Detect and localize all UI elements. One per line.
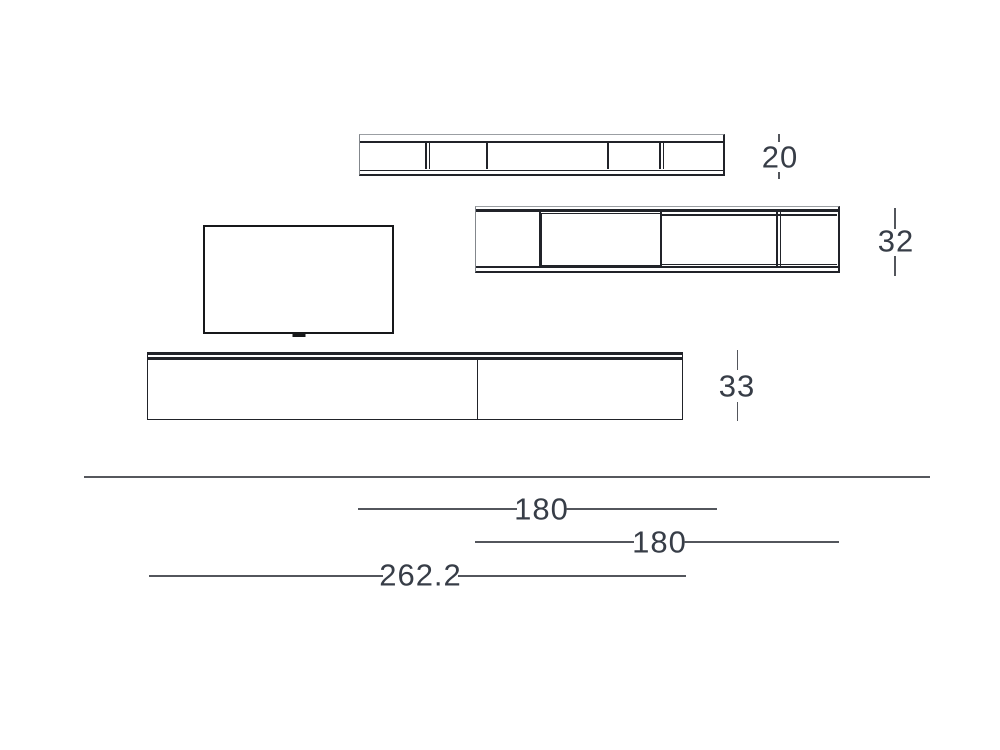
dimension-line (358, 508, 517, 510)
compartment-divider (607, 142, 609, 169)
dimension-line (684, 541, 839, 543)
compartment-divider (659, 142, 661, 169)
shelf-top-band (476, 209, 838, 212)
furniture-dimension-diagram: 20 32 33 180 180 262.2 (0, 0, 1000, 750)
dimension-line (566, 508, 718, 510)
dimension-line (458, 575, 687, 577)
dimension-tick (894, 256, 896, 276)
dimension-tick (737, 350, 739, 370)
dimension-value: 180 (514, 493, 569, 524)
tv-stand-foot (292, 332, 305, 337)
compartment-divider (663, 142, 665, 169)
shelf-bottom-edge-line (360, 170, 723, 172)
compartment-divider (660, 212, 662, 267)
middle-shelf (475, 206, 840, 273)
dimension-tick (737, 402, 739, 421)
compartment-divider (776, 212, 778, 267)
cabinet-top-band (148, 357, 682, 360)
compartment-divider (539, 212, 541, 267)
dimension-value: 262.2 (379, 560, 462, 591)
shelf-door-front (541, 213, 661, 266)
dimension-value: 33 (719, 371, 755, 402)
dimension-line (475, 541, 634, 543)
compartment-divider (486, 142, 488, 169)
dimension-value: 180 (632, 526, 687, 557)
base-cabinet (147, 352, 683, 420)
compartment-divider (429, 142, 431, 169)
shelf-bottom-band (476, 266, 838, 268)
dimension-line (149, 575, 383, 577)
compartment-divider (780, 212, 782, 267)
dimension-value: 32 (878, 226, 914, 257)
reference-baseline (84, 476, 930, 478)
dimension-tick (778, 172, 780, 180)
shelf-top-edge-line (360, 141, 723, 143)
compartment-divider (477, 360, 479, 419)
dimension-value: 20 (762, 142, 798, 173)
tv-screen (203, 225, 394, 334)
compartment-divider (425, 142, 427, 169)
top-shelf (359, 134, 725, 176)
